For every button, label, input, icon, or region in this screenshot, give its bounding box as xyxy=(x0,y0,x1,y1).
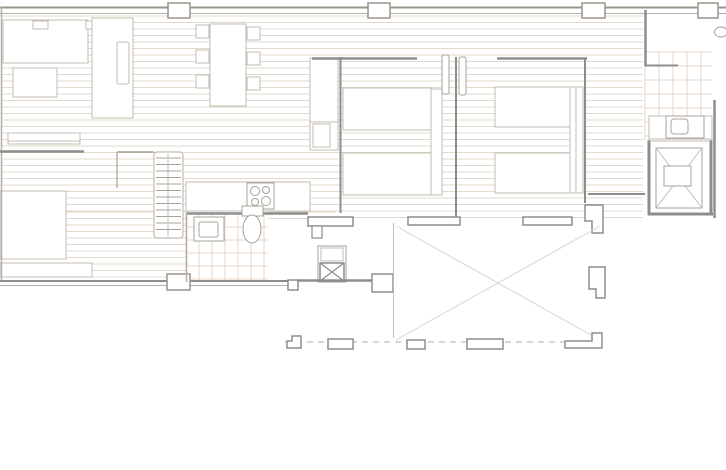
terrace-sill-2 xyxy=(523,217,572,225)
terrace-post-5 xyxy=(565,333,602,348)
bed-1-left xyxy=(343,88,431,130)
chair-2 xyxy=(196,50,209,63)
chair-5 xyxy=(247,52,260,65)
bed-1-headboard xyxy=(431,89,442,195)
cooktop xyxy=(247,183,274,209)
terrace-post-1 xyxy=(287,336,301,348)
terrace-post-4 xyxy=(467,339,503,349)
daybed xyxy=(0,191,66,259)
door-leaf-2 xyxy=(459,57,466,95)
terrace-column-e xyxy=(589,267,605,298)
low-sideboard xyxy=(0,263,92,277)
bed-2-right xyxy=(495,153,570,193)
terrace-door-pier xyxy=(308,217,353,226)
terrace-door-pier-stub xyxy=(312,226,322,238)
chair-3 xyxy=(196,75,209,88)
door-leaf-1 xyxy=(442,55,449,94)
pier-top-2 xyxy=(368,3,390,18)
utility-step xyxy=(288,280,298,290)
coffee-table xyxy=(13,68,57,97)
vanity-sink-basin xyxy=(671,119,688,134)
floor-plan-canvas xyxy=(0,0,726,470)
chair-4 xyxy=(247,27,260,40)
toilet-bowl xyxy=(243,215,261,243)
terrace-sill-1 xyxy=(408,217,460,225)
pier-top-1 xyxy=(168,3,190,18)
toilet-tank xyxy=(242,206,263,216)
wall-console xyxy=(8,133,80,144)
bed-2-left xyxy=(495,87,570,127)
wardrobe-shelf xyxy=(313,124,330,147)
dining-table xyxy=(210,24,246,106)
bed-1-right xyxy=(343,153,431,195)
pier-top-3 xyxy=(582,3,605,18)
terrace-post-3 xyxy=(407,340,425,349)
chair-1 xyxy=(196,25,209,38)
utility-pier xyxy=(372,274,393,292)
sofa-cushion xyxy=(117,42,129,84)
pier-top-4 xyxy=(698,3,718,18)
elevator-inner xyxy=(664,166,691,186)
floor-plan-drawing xyxy=(0,0,726,470)
terrace-post-2 xyxy=(328,339,353,349)
washbasin-bowl xyxy=(199,222,218,237)
chair-6 xyxy=(247,77,260,90)
sideboard-item xyxy=(33,21,48,29)
entry-door-knob xyxy=(715,27,726,37)
